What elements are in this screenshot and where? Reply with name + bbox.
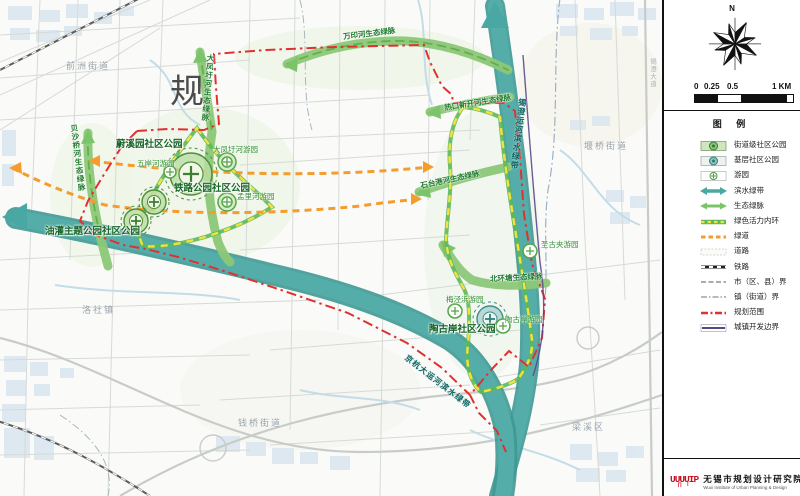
- scale-tick: 1 KM: [772, 82, 791, 91]
- legend-label: 滨水绿带: [734, 185, 764, 196]
- legend-row: 滨水绿带: [664, 183, 800, 198]
- legend-row: 市（区、县）界: [664, 274, 800, 289]
- town-boundary-icon: [700, 290, 727, 302]
- garden-shengguja: [523, 244, 537, 258]
- legend: 图 例 街道级社区公园 基层社区公园 游园 滨水绿带 生态绿脉: [664, 110, 800, 334]
- legend-label: 生态绿脉: [734, 200, 764, 211]
- garden-menglihe: [218, 193, 236, 211]
- legend-label: 铁路: [734, 261, 749, 272]
- map-graphics: [0, 0, 662, 496]
- legend-panel: N 0 0.25 0.5 1 KM: [662, 0, 800, 496]
- legend-row: 游园: [664, 167, 800, 182]
- garden-meijingbang: [448, 304, 462, 318]
- compass-rose-icon: [707, 12, 763, 74]
- legend-row: 基层社区公园: [664, 152, 800, 167]
- institute-logo-mark: UUUUIP ∏ I: [670, 476, 698, 488]
- scale-tick: 0: [694, 82, 698, 91]
- vitality-ring-icon: [700, 215, 727, 227]
- legend-label: 绿色活力内环: [734, 215, 779, 226]
- legend-row: 城镇开发边界: [664, 319, 800, 334]
- institute-name-en: Wuxi Institute of Urban Planning & Desig…: [703, 485, 800, 490]
- institute-logo: UUUUIP ∏ I 无锡市规划设计研究院 Wuxi Institute of …: [670, 473, 800, 490]
- legend-row: 街道级社区公园: [664, 137, 800, 152]
- planning-map-sheet: 规 前洲街道 洛社镇 钱桥街道 堰桥街道 梁溪区 锡澄大道 蔚溪园社区公园 铁路…: [0, 0, 800, 496]
- legend-label: 市（区、县）界: [734, 276, 787, 287]
- railway-icon: [700, 260, 727, 272]
- garden-wuankhe: [164, 166, 176, 178]
- legend-label: 镇（街道）界: [734, 291, 779, 302]
- garden-taoguan-youyuan: [496, 319, 510, 333]
- dev-boundary-icon: [700, 321, 727, 333]
- legend-label: 游园: [734, 169, 749, 180]
- scale-bar-segments: [694, 94, 794, 103]
- map-canvas: 规 前洲街道 洛社镇 钱桥街道 堰桥街道 梁溪区 锡澄大道 蔚溪园社区公园 铁路…: [0, 0, 662, 496]
- legend-label: 规划范围: [734, 306, 764, 317]
- greenway-icon: [700, 230, 727, 242]
- street-park-icon: [700, 139, 727, 151]
- legend-label: 基层社区公园: [734, 154, 779, 165]
- legend-row: 绿色活力内环: [664, 213, 800, 228]
- city-boundary-icon: [700, 275, 727, 287]
- garden-icon: [700, 169, 727, 181]
- legend-title: 图 例: [664, 117, 800, 130]
- scale-tick: 0.25: [704, 82, 720, 91]
- scale-bar: 0 0.25 0.5 1 KM: [694, 82, 794, 103]
- eco-vein-icon: [700, 199, 727, 211]
- waterbelt-icon: [700, 184, 727, 196]
- legend-label: 街道级社区公园: [734, 139, 787, 150]
- legend-label: 道路: [734, 245, 749, 256]
- legend-row: 镇（街道）界: [664, 289, 800, 304]
- legend-row: 生态绿脉: [664, 198, 800, 213]
- plan-scope-icon: [700, 306, 727, 318]
- legend-label: 绿道: [734, 230, 749, 241]
- legend-row: 铁路: [664, 259, 800, 274]
- title-block: UUUUIP ∏ I 无锡市规划设计研究院 Wuxi Institute of …: [664, 458, 800, 496]
- legend-label: 城镇开发边界: [734, 321, 779, 332]
- garden-dafengxu: [218, 153, 236, 171]
- basic-park-icon: [700, 154, 727, 166]
- scale-tick: 0.5: [727, 82, 738, 91]
- road-icon: [700, 245, 727, 257]
- legend-row: 绿道: [664, 228, 800, 243]
- legend-row: 规划范围: [664, 304, 800, 319]
- institute-name-cn: 无锡市规划设计研究院: [703, 473, 800, 485]
- legend-row: 道路: [664, 243, 800, 258]
